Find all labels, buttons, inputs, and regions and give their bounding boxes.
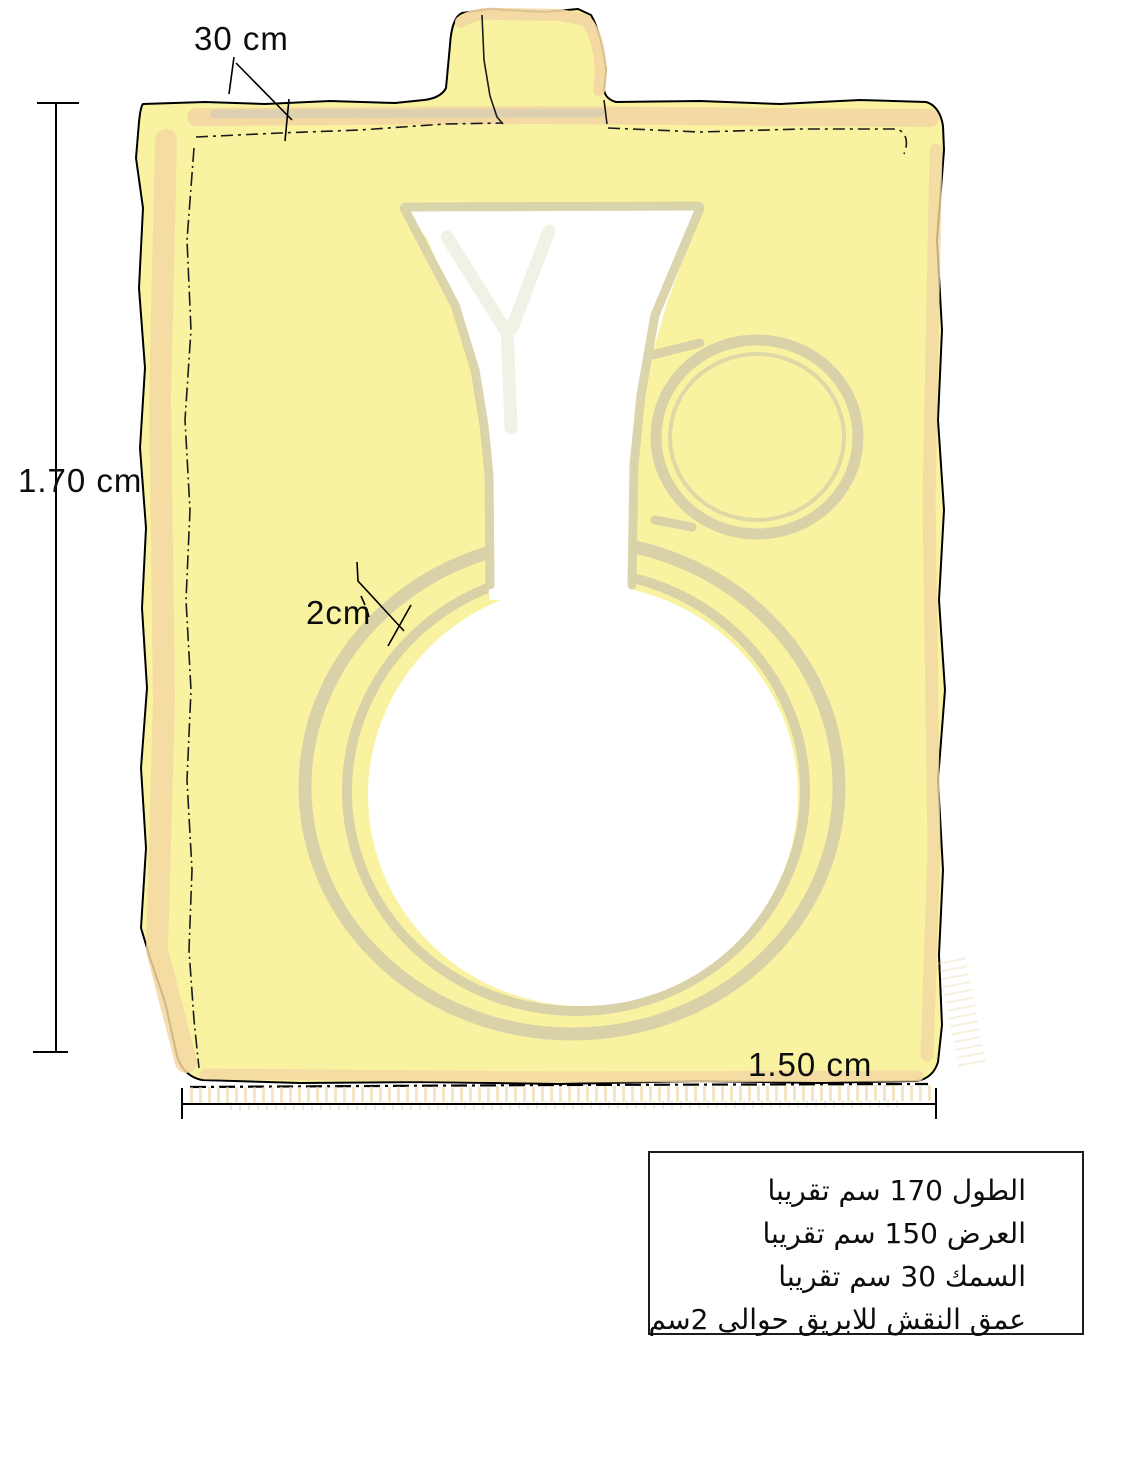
info-line-length: الطول 170 سم تقريبا bbox=[660, 1169, 1026, 1212]
jug-body bbox=[368, 584, 798, 1006]
depth-label: 2cm bbox=[306, 594, 371, 632]
height-dimension-line bbox=[33, 103, 79, 1052]
info-line-thickness: السمك 30 سم تقريبا bbox=[660, 1255, 1026, 1298]
height-label: 1.70 cm bbox=[18, 462, 142, 500]
thickness-label: 30 cm bbox=[194, 20, 289, 58]
info-line-width: العرض 150 سم تقريبا bbox=[660, 1212, 1026, 1255]
diagram-page: 30 cm 1.70 cm 2cm 1.50 cm الطول 170 سم ت… bbox=[0, 0, 1130, 1458]
width-label: 1.50 cm bbox=[748, 1046, 872, 1084]
info-box: الطول 170 سم تقريبا العرض 150 سم تقريبا … bbox=[648, 1151, 1084, 1335]
info-line-depth: عمق النقش للابريق حوالى 2سم bbox=[660, 1298, 1026, 1341]
